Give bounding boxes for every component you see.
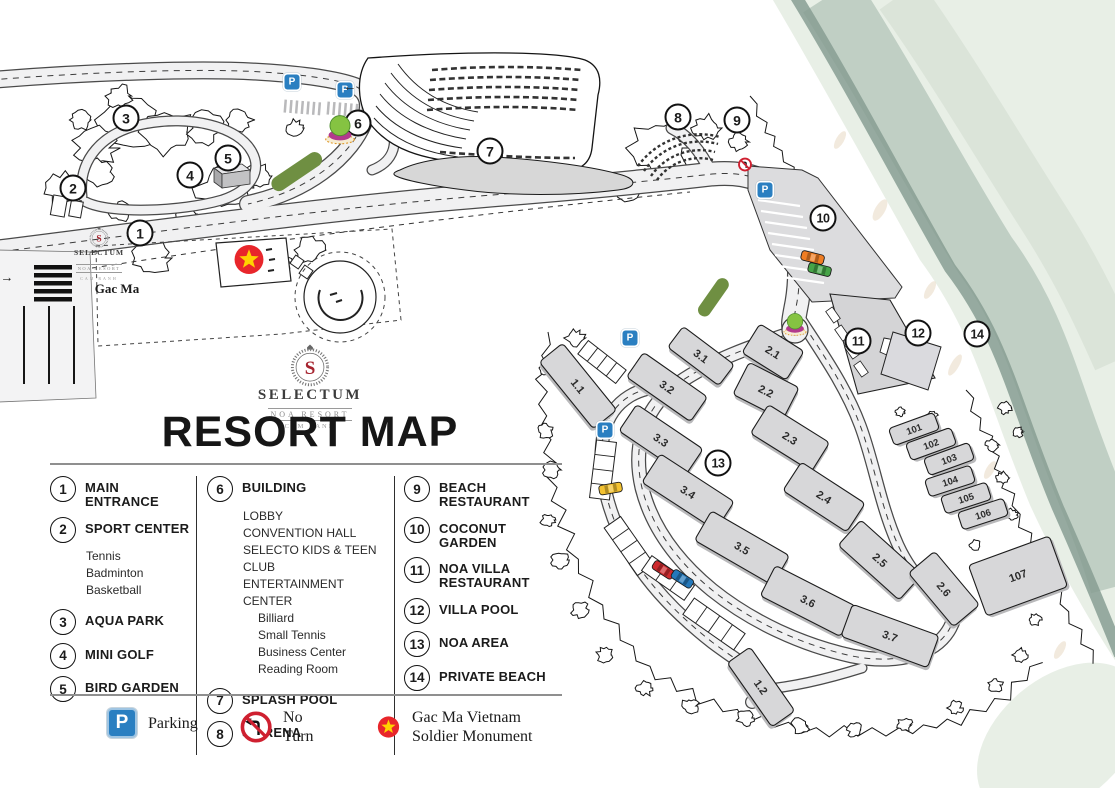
- map-marker-5: 5: [215, 145, 242, 172]
- legend-label: BIRD GARDEN: [85, 676, 179, 695]
- brand-emblem-icon: S: [88, 226, 110, 248]
- resort-map-poster: 1.13.13.23.33.43.53.63.71.22.12.22.32.42…: [0, 0, 1115, 788]
- legend-label: SPORT CENTER: [85, 517, 189, 536]
- symbol-monument-label: Gac Ma Vietnam Soldier Monument: [412, 708, 562, 746]
- legend-number-2: 2: [50, 517, 76, 543]
- direction-arrow: →: [1, 270, 14, 285]
- svg-text:S: S: [305, 358, 316, 379]
- legend-subitem: Small Tennis: [258, 627, 394, 644]
- legend-subitem: Basketball: [86, 582, 190, 599]
- map-marker-12: 12: [905, 320, 932, 347]
- legend-number-4: 4: [50, 643, 76, 669]
- no-turn-icon: [240, 710, 272, 744]
- map-marker-9: 9: [724, 107, 751, 134]
- legend-subitem: LOBBY: [243, 508, 394, 525]
- legend-number-12: 12: [404, 598, 430, 624]
- legend-label: COCONUT GARDEN: [439, 517, 562, 550]
- parking-icon: P: [598, 423, 613, 438]
- legend-label: PRIVATE BEACH: [439, 665, 546, 684]
- legend-item-13: 13NOA AREA: [404, 631, 562, 657]
- symbol-parking: P Parking: [107, 708, 198, 738]
- brand-location: CAM RANH: [68, 276, 130, 281]
- parking-icon: P: [107, 708, 137, 738]
- legend-number-3: 3: [50, 609, 76, 635]
- map-marker-10: 10: [810, 205, 837, 232]
- legend-number-1: 1: [50, 476, 76, 502]
- legend-sublist: TennisBadmintonBasketball: [86, 548, 190, 599]
- symbol-no-turn-label: No Turn: [283, 708, 334, 746]
- legend-number-6: 6: [207, 476, 233, 502]
- legend-item-4: 4MINI GOLF: [50, 643, 190, 669]
- legend-label: BUILDING: [242, 476, 306, 495]
- legend-item-12: 12VILLA POOL: [404, 598, 562, 624]
- map-marker-13: 13: [705, 450, 732, 477]
- brand-name: SELECTUM: [160, 387, 460, 404]
- map-marker-1: 1: [127, 220, 154, 247]
- legend-item-9: 9BEACH RESTAURANT: [404, 476, 562, 509]
- map-marker-4: 4: [177, 162, 204, 189]
- legend-item-11: 11NOA VILLA RESTAURANT: [404, 557, 562, 590]
- brand-resort: NOA RESORT: [76, 264, 123, 273]
- legend-subitem: Billiard: [258, 610, 394, 627]
- legend-subitem: Reading Room: [258, 661, 394, 678]
- car-icon: [805, 260, 834, 284]
- star-monument-icon: [376, 710, 401, 744]
- map-marker-3: 3: [113, 105, 140, 132]
- legend-sublist: LOBBYCONVENTION HALLSELECTO KIDS & TEEN …: [243, 508, 394, 678]
- legend-subitem: Tennis: [86, 548, 190, 565]
- brand-emblem-icon: S: [288, 343, 332, 387]
- legend-item-10: 10COCONUT GARDEN: [404, 517, 562, 550]
- map-logo: S SELECTUM NOA RESORT CAM RANH: [68, 226, 130, 281]
- symbol-no-turn: No Turn: [240, 708, 334, 746]
- legend-label: MAIN ENTRANCE: [85, 476, 190, 509]
- tree-topiary-icon: [320, 112, 360, 151]
- legend-label: MINI GOLF: [85, 643, 154, 662]
- legend-label: VILLA POOL: [439, 598, 519, 617]
- legend-subitem: SELECTO KIDS & TEEN CLUB: [243, 542, 394, 576]
- svg-text:S: S: [96, 234, 101, 244]
- parking-icon: P: [623, 331, 638, 346]
- symbol-parking-label: Parking: [148, 714, 198, 733]
- legend-subitem: Badminton: [86, 565, 190, 582]
- legend-number-10: 10: [404, 517, 430, 543]
- parking-icon: P: [758, 183, 773, 198]
- brand-name: SELECTUM: [68, 248, 130, 257]
- no-turn-icon: [738, 157, 753, 177]
- legend-number-14: 14: [404, 665, 430, 691]
- map-marker-11: 11: [845, 328, 872, 355]
- legend-number-11: 11: [404, 557, 430, 583]
- legend-subitem: ENTERTAINMENT CENTER: [243, 576, 394, 610]
- map-marker-8: 8: [665, 104, 692, 131]
- legend-item-2: 2SPORT CENTER: [50, 517, 190, 543]
- legend-label: BEACH RESTAURANT: [439, 476, 562, 509]
- car-icon: [597, 480, 625, 502]
- symbol-monument: Gac Ma Vietnam Soldier Monument: [376, 708, 562, 746]
- map-marker-14: 14: [964, 321, 991, 348]
- legend-label: NOA VILLA RESTAURANT: [439, 557, 562, 590]
- legend-subitem: Business Center: [258, 644, 394, 661]
- legend-item-3: 3AQUA PARK: [50, 609, 190, 635]
- direction-arrow: ←: [344, 79, 357, 94]
- legend-item-6: 6BUILDING: [207, 476, 394, 502]
- parking-icon: P: [285, 75, 300, 90]
- map-label-gac-ma: Gac Ma: [95, 281, 139, 297]
- legend-number-9: 9: [404, 476, 430, 502]
- legend-subitem: CONVENTION HALL: [243, 525, 394, 542]
- legend-number-13: 13: [404, 631, 430, 657]
- legend-label: AQUA PARK: [85, 609, 164, 628]
- map-marker-2: 2: [60, 175, 87, 202]
- legend-symbols: P Parking No Turn Gac Ma Vietnam Soldier…: [50, 694, 562, 746]
- page-title: RESORT MAP: [115, 408, 505, 457]
- map-marker-7: 7: [477, 138, 504, 165]
- legend-item-1: 1MAIN ENTRANCE: [50, 476, 190, 509]
- legend-label: NOA AREA: [439, 631, 509, 650]
- legend-item-14: 14PRIVATE BEACH: [404, 665, 562, 691]
- star-monument-icon: [232, 243, 266, 282]
- tree-topiary-icon: [780, 310, 811, 342]
